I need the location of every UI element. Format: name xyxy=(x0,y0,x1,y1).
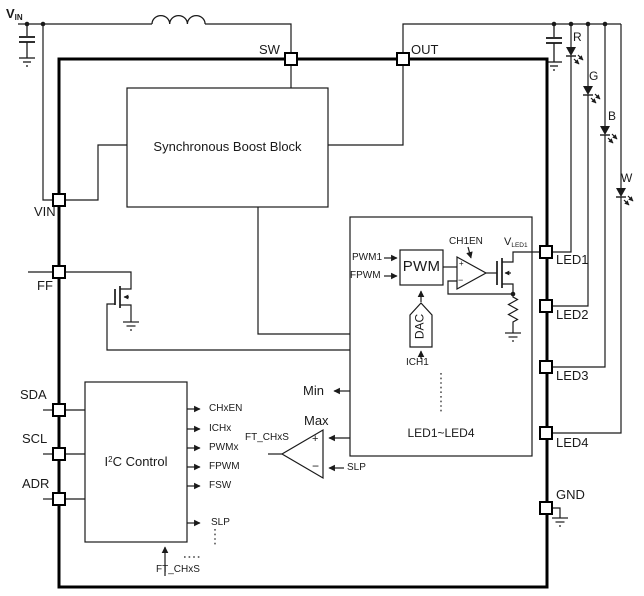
pin-scl xyxy=(53,448,65,460)
i2c-output-ichx: ICHx xyxy=(209,423,231,434)
pin-led3 xyxy=(540,361,552,373)
i2c-output-pwmx: PWMx xyxy=(209,442,238,453)
pin-led2 xyxy=(540,300,552,312)
pwm-block-label: PWM xyxy=(400,259,443,276)
pin-gnd xyxy=(540,502,552,514)
led-driver-block-diagram: VIN SW OUT VIN FF SDA SCL ADR LED1 LED2 … xyxy=(0,0,644,596)
max-label: Max xyxy=(304,414,329,429)
led-label-w: W xyxy=(621,172,632,185)
ft-chxs-comparator-label: FT_CHxS xyxy=(245,432,289,443)
i2c-output-fpwm: FPWM xyxy=(209,461,240,472)
gnd-ground-icon xyxy=(552,508,568,526)
pin-label-out: OUT xyxy=(411,43,438,58)
comparator-plus-mark: + xyxy=(312,433,318,445)
pin-label-adr: ADR xyxy=(22,477,49,492)
pin-label-led2: LED2 xyxy=(556,308,589,323)
pin-led4 xyxy=(540,427,552,439)
min-label: Min xyxy=(303,384,324,399)
pin-label-led4: LED4 xyxy=(556,436,589,451)
pin-label-led1: LED1 xyxy=(556,253,589,268)
boost-block-label: Synchronous Boost Block xyxy=(127,140,328,155)
pin-label-gnd: GND xyxy=(556,488,585,503)
pwm1-label: PWM1 xyxy=(352,252,382,263)
pin-sda xyxy=(53,404,65,416)
vled1-label: VLED1 xyxy=(504,236,528,249)
vin-supply-label: VIN xyxy=(6,7,23,23)
ch1en-label: CH1EN xyxy=(449,236,483,247)
i2c-output-fsw: FSW xyxy=(209,480,231,491)
ich1-label: ICH1 xyxy=(406,357,429,368)
pin-label-scl: SCL xyxy=(22,432,47,447)
i2c-block-label: I2C Control xyxy=(85,455,187,470)
i2c-output-arrows xyxy=(165,409,215,576)
led-label-b: B xyxy=(608,110,616,123)
pin-label-sda: SDA xyxy=(20,388,47,403)
i2c-output-chxen: CHxEN xyxy=(209,403,242,414)
opamp-plus-mark: + xyxy=(459,260,464,269)
pin-led1 xyxy=(540,246,552,258)
chip-outline xyxy=(59,59,547,587)
fpwm-channel-label: FPWM xyxy=(350,270,381,281)
circuit-diagram-canvas xyxy=(0,0,644,596)
slp-comparator-label: SLP xyxy=(347,462,366,473)
pin-squares xyxy=(53,53,552,514)
ft-chxs-input-label: FT_CHxS xyxy=(156,564,200,575)
pin-ff xyxy=(53,266,65,278)
dac-block-label: DAC xyxy=(414,309,429,345)
input-capacitor-icon xyxy=(19,24,35,66)
comparator-minus-mark: − xyxy=(312,460,319,473)
pin-sw xyxy=(285,53,297,65)
pin-adr xyxy=(53,493,65,505)
sense-resistor-icon xyxy=(509,294,518,333)
channel-block-label: LED1~LED4 xyxy=(350,427,532,440)
pin-label-sw: SW xyxy=(259,43,280,58)
inductor-icon xyxy=(152,16,205,24)
opamp-minus-mark: − xyxy=(458,275,463,285)
led-string-red xyxy=(552,24,583,252)
pin-label-ff: FF xyxy=(37,279,53,294)
pin-out xyxy=(397,53,409,65)
led-label-r: R xyxy=(573,31,582,44)
pin-label-led3: LED3 xyxy=(556,369,589,384)
ff-mosfet-icon xyxy=(65,272,350,350)
i2c-output-slp: SLP xyxy=(211,517,230,528)
led-label-g: G xyxy=(589,70,598,83)
pin-label-vin: VIN xyxy=(34,205,56,220)
